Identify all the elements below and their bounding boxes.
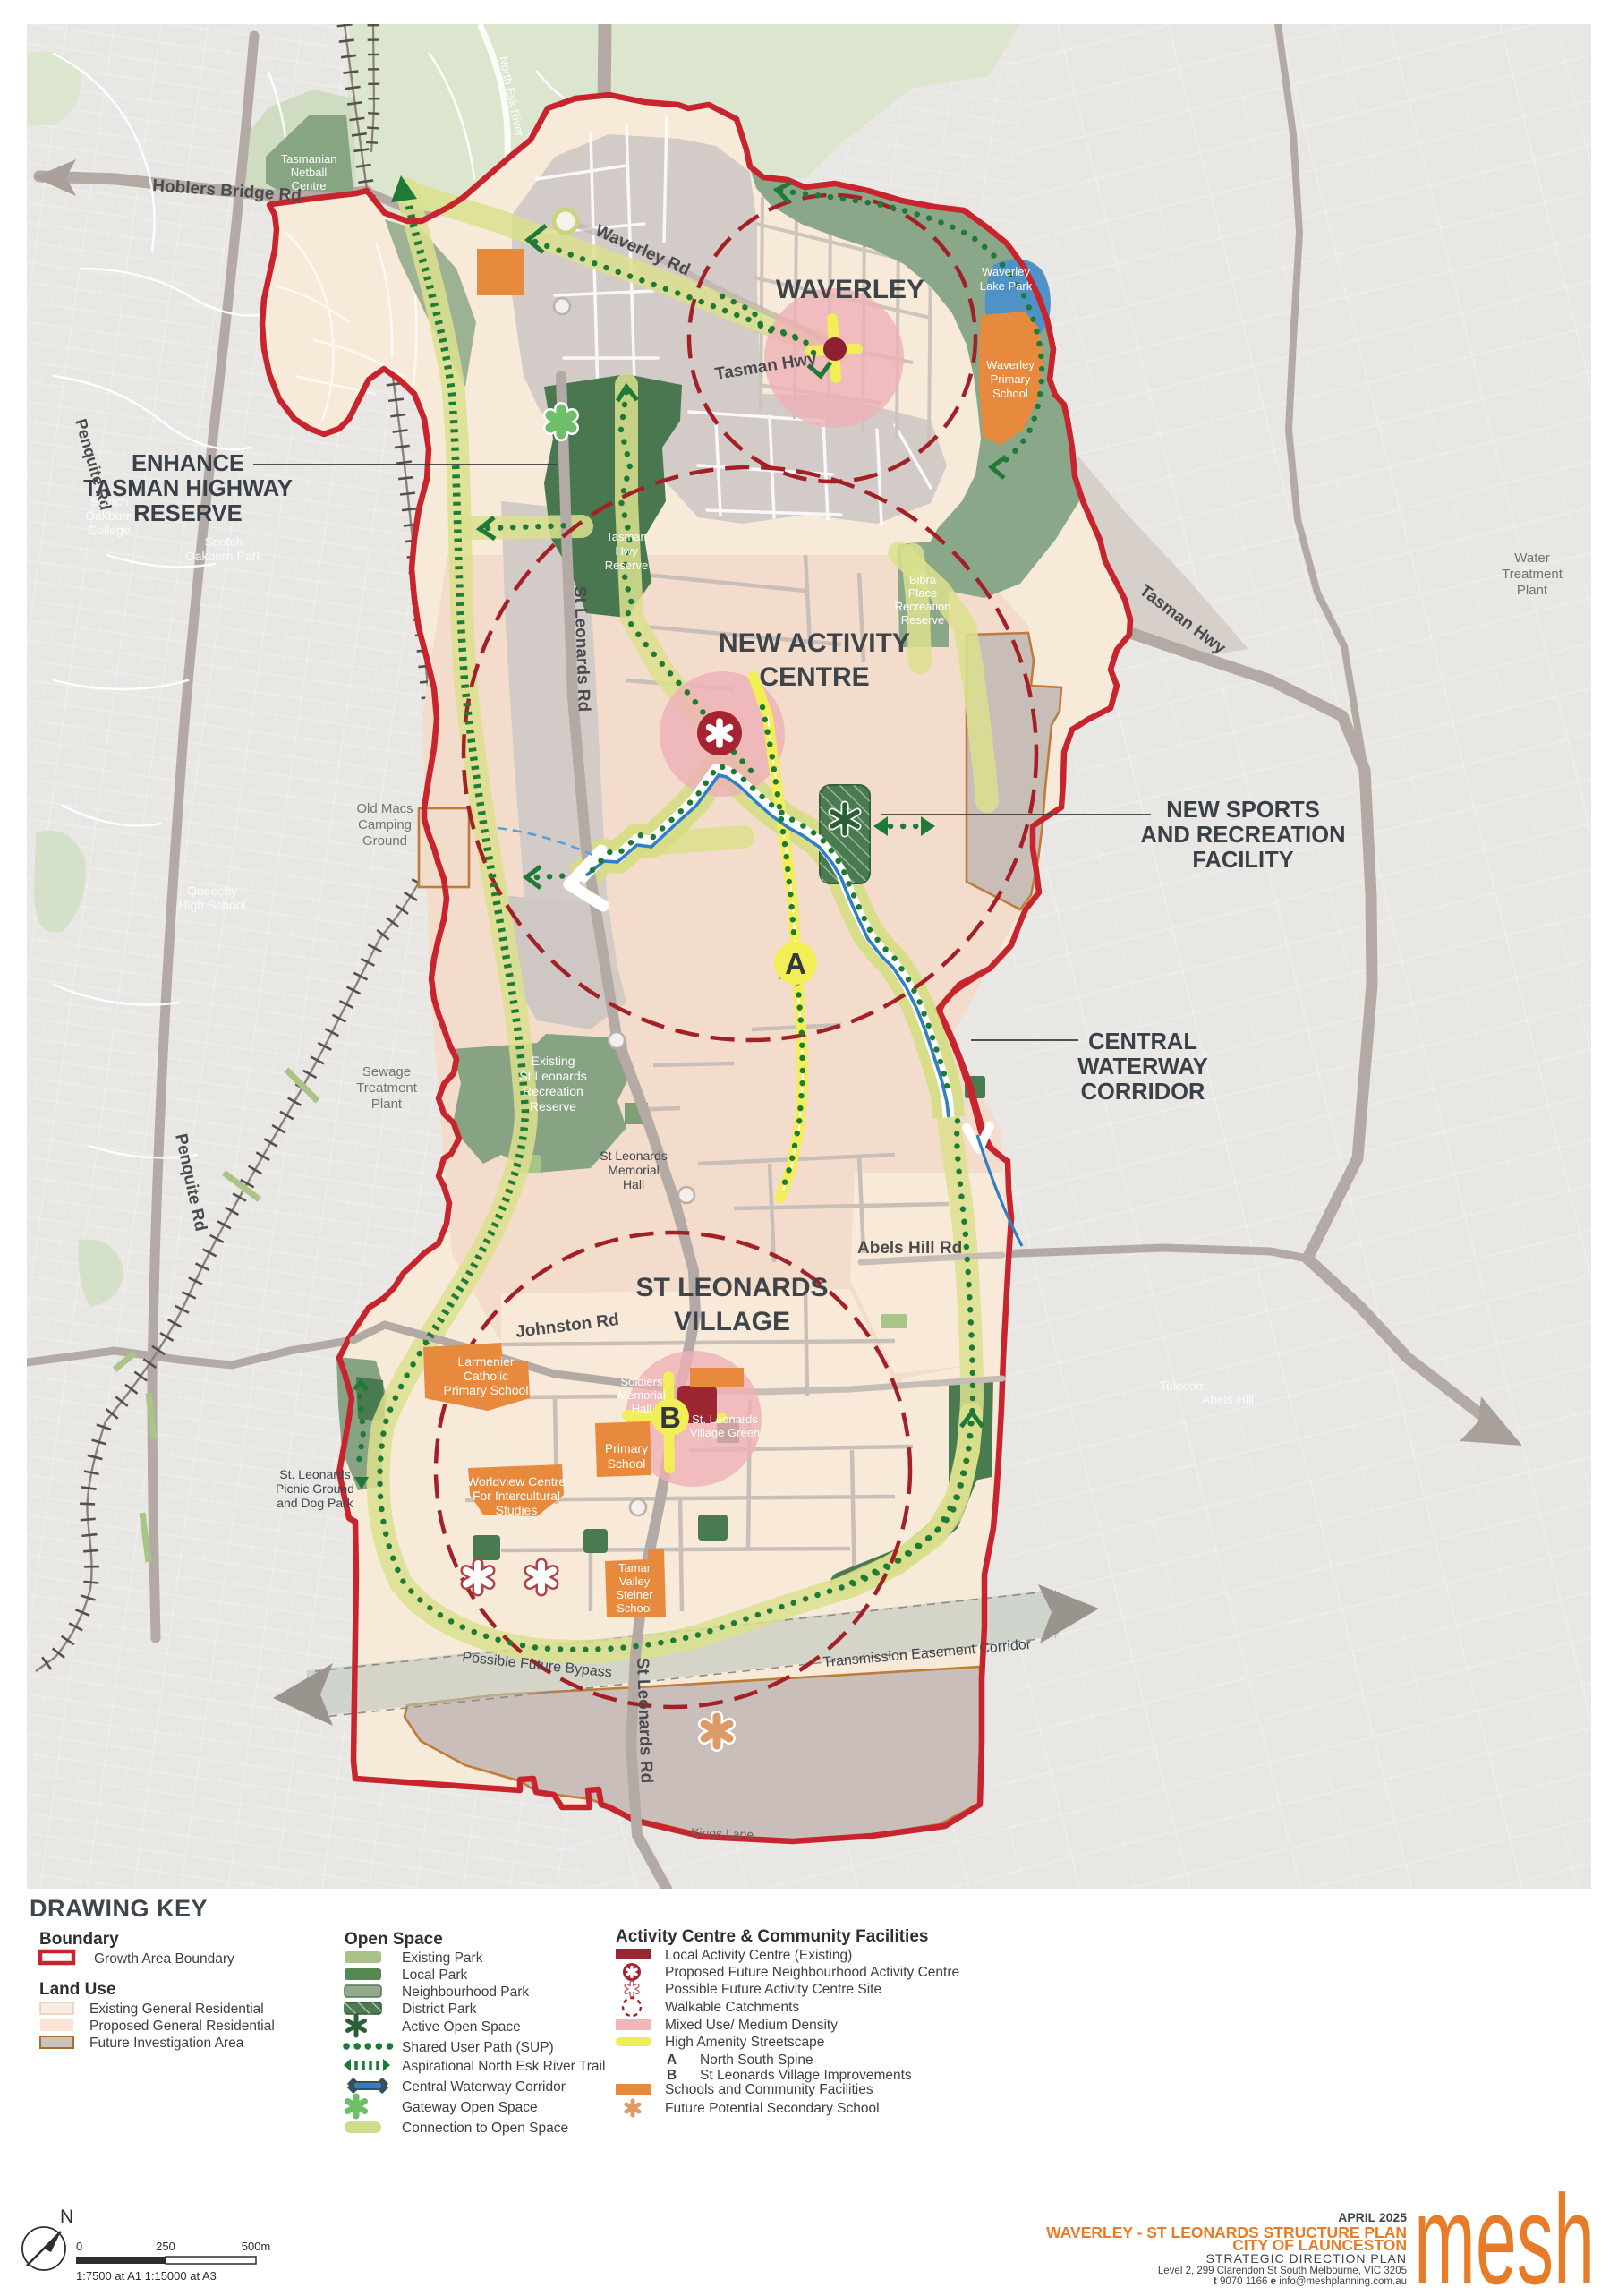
svg-text:Existing General Residential: Existing General Residential (89, 2002, 264, 2017)
svg-text:AND RECREATION: AND RECREATION (1140, 823, 1345, 848)
svg-text:Camping: Camping (358, 817, 412, 832)
svg-text:250: 250 (156, 2240, 175, 2253)
svg-text:Old Macs: Old Macs (356, 801, 413, 816)
svg-text:Proposed Future Neighbourhood: Proposed Future Neighbourhood Activity C… (665, 1965, 959, 1980)
svg-text:CENTRE: CENTRE (759, 662, 869, 692)
svg-text:Tasman: Tasman (606, 530, 647, 543)
svg-text:Neighbourhood Park: Neighbourhood Park (402, 1984, 529, 2000)
svg-text:Queechy: Queechy (187, 883, 237, 898)
svg-text:Treatment: Treatment (356, 1080, 418, 1096)
svg-text:DRAWING KEY: DRAWING KEY (30, 1895, 208, 1922)
svg-text:Catholic: Catholic (464, 1369, 509, 1383)
svg-text:Place: Place (908, 586, 938, 600)
svg-text:Central Waterway Corridor: Central Waterway Corridor (402, 2079, 566, 2095)
svg-text:Ground: Ground (362, 833, 407, 849)
svg-text:B: B (660, 1401, 681, 1434)
svg-text:Local Park: Local Park (402, 1967, 467, 1983)
svg-text:Scotch: Scotch (205, 534, 243, 549)
svg-text:Plant: Plant (371, 1097, 403, 1112)
svg-text:Connection to Open Space: Connection to Open Space (402, 2121, 568, 2136)
svg-text:VILLAGE: VILLAGE (674, 1307, 790, 1336)
svg-text:Hwy: Hwy (615, 544, 638, 558)
svg-text:WATERWAY: WATERWAY (1077, 1054, 1207, 1080)
svg-text:Waverley: Waverley (982, 265, 1030, 278)
svg-text:St Leonards Village Improvemen: St Leonards Village Improvements (700, 2068, 912, 2083)
svg-text:District Park: District Park (402, 2002, 477, 2017)
svg-text:Active Open Space: Active Open Space (402, 2019, 521, 2035)
svg-text:Future Investigation Area: Future Investigation Area (89, 2036, 244, 2051)
svg-text:NEW ACTIVITY: NEW ACTIVITY (719, 628, 910, 658)
svg-text:St. Leonards: St. Leonards (279, 1467, 350, 1481)
svg-text:Hall: Hall (623, 1177, 644, 1191)
svg-text:500m: 500m (242, 2240, 271, 2253)
svg-text:ENHANCE: ENHANCE (132, 451, 244, 476)
svg-text:St Leonards: St Leonards (519, 1069, 587, 1083)
svg-text:Steiner: Steiner (616, 1588, 653, 1601)
svg-text:t 9070 1166 e info@meshplanni: t 9070 1166 e info@meshplanning.com.au (1213, 2276, 1407, 2287)
svg-text:Tasmanian: Tasmanian (281, 152, 337, 166)
svg-text:Future Potential Secondary Sch: Future Potential Secondary School (665, 2101, 880, 2116)
svg-text:RESERVE: RESERVE (133, 501, 242, 526)
svg-text:Activity Centre & Community Fa: Activity Centre & Community Facilities (616, 1927, 928, 1946)
svg-text:Memorial: Memorial (617, 1388, 666, 1402)
svg-text:Centre: Centre (291, 179, 326, 192)
svg-text:Plant: Plant (1517, 583, 1548, 598)
svg-text:Lake Park: Lake Park (980, 279, 1033, 293)
svg-text:Treatment: Treatment (1502, 567, 1563, 582)
svg-text:Recreation: Recreation (523, 1084, 583, 1098)
svg-text:Kings Lane: Kings Lane (691, 1825, 754, 1841)
svg-text:Primary School: Primary School (444, 1383, 529, 1397)
svg-text:Schools and Community Faciliti: Schools and Community Facilities (665, 2082, 873, 2097)
svg-text:Larmenier: Larmenier (457, 1354, 514, 1369)
svg-text:Shared User Path (SUP): Shared User Path (SUP) (402, 2040, 554, 2055)
svg-text:High School: High School (178, 898, 246, 912)
svg-text:Picnic Ground: Picnic Ground (276, 1481, 354, 1496)
svg-text:Oakburn Park: Oakburn Park (185, 549, 263, 563)
svg-text:Boundary: Boundary (39, 1930, 119, 1949)
svg-text:CORRIDOR: CORRIDOR (1081, 1080, 1205, 1105)
svg-text:mesh: mesh (1414, 2169, 1595, 2292)
svg-text:WAVERLEY: WAVERLEY (776, 275, 924, 304)
svg-text:St Leonards: St Leonards (600, 1148, 668, 1163)
svg-text:A: A (785, 947, 806, 980)
svg-text:For Intercultural: For Intercultural (473, 1489, 560, 1503)
svg-text:Growth Area Boundary: Growth Area Boundary (94, 1951, 234, 1967)
svg-text:Recreation: Recreation (895, 600, 951, 613)
svg-text:B: B (667, 2068, 677, 2083)
svg-text:School: School (617, 1601, 652, 1615)
svg-text:Existing Park: Existing Park (402, 1950, 483, 1966)
svg-text:Water: Water (1514, 551, 1549, 566)
svg-text:Abels Hill Rd: Abels Hill Rd (857, 1239, 962, 1258)
svg-text:STRATEGIC DIRECTION PLAN: STRATEGIC DIRECTION PLAN (1206, 2251, 1407, 2266)
svg-text:Tamar: Tamar (618, 1561, 651, 1575)
svg-text:ST LEONARDS: ST LEONARDS (635, 1273, 828, 1302)
svg-text:Oakburn: Oakburn (85, 508, 133, 523)
svg-text:A: A (667, 2053, 677, 2068)
svg-text:Bibra: Bibra (909, 573, 937, 586)
svg-text:Waverley: Waverley (986, 358, 1035, 371)
svg-text:Sewage: Sewage (362, 1064, 411, 1080)
svg-text:Studies: Studies (496, 1503, 538, 1517)
svg-text:Possible Future Activity Centr: Possible Future Activity Centre Site (665, 1982, 881, 1997)
svg-text:Mixed Use/ Medium Density: Mixed Use/ Medium Density (665, 2018, 838, 2033)
svg-text:High Amenity Streetscape: High Amenity Streetscape (665, 2035, 824, 2050)
svg-text:Netball: Netball (291, 166, 328, 179)
svg-text:Telecom: Telecom (1160, 1378, 1206, 1393)
svg-text:Worldview Centre: Worldview Centre (467, 1474, 566, 1489)
svg-text:FACILITY: FACILITY (1192, 848, 1293, 873)
svg-text:Level 2, 299 Clarendon St Sout: Level 2, 299 Clarendon St South Melbourn… (1158, 2266, 1407, 2276)
svg-text:Soldiers: Soldiers (621, 1375, 663, 1388)
svg-text:Memorial: Memorial (608, 1163, 660, 1177)
svg-text:Hall: Hall (632, 1402, 652, 1415)
svg-text:Local Activity Centre (Existin: Local Activity Centre (Existing) (665, 1948, 852, 1963)
svg-text:1:7500 at A1 1:15000 at A3: 1:7500 at A1 1:15000 at A3 (76, 2269, 217, 2283)
svg-text:Reserve: Reserve (901, 613, 944, 627)
svg-text:College: College (88, 523, 131, 537)
svg-text:School: School (608, 1456, 646, 1471)
svg-text:N: N (60, 2206, 73, 2227)
svg-text:CENTRAL: CENTRAL (1088, 1029, 1197, 1054)
svg-text:Reserve: Reserve (530, 1099, 576, 1114)
svg-text:School: School (992, 387, 1028, 400)
svg-text:Proposed General Residential: Proposed General Residential (89, 2019, 275, 2034)
svg-text:Gateway Open Space: Gateway Open Space (402, 2100, 538, 2115)
svg-text:Reserve: Reserve (605, 559, 648, 572)
svg-text:Primary: Primary (991, 372, 1031, 386)
svg-text:Valley: Valley (619, 1575, 651, 1588)
svg-text:and Dog Park: and Dog Park (277, 1496, 354, 1510)
svg-text:Primary: Primary (605, 1441, 648, 1455)
svg-text:APRIL 2025: APRIL 2025 (1338, 2210, 1407, 2224)
svg-text:Open Space: Open Space (345, 1930, 443, 1949)
svg-text:0: 0 (76, 2240, 82, 2253)
svg-text:Land Use: Land Use (39, 1980, 116, 1999)
svg-text:Aspirational North Esk River T: Aspirational North Esk River Trail (402, 2059, 605, 2074)
svg-text:North South Spine: North South Spine (700, 2053, 813, 2068)
svg-text:NEW SPORTS: NEW SPORTS (1166, 798, 1319, 823)
svg-text:Abels Hill: Abels Hill (1202, 1392, 1254, 1406)
svg-text:Existing: Existing (531, 1054, 575, 1068)
svg-text:Village Green: Village Green (690, 1426, 761, 1439)
svg-text:Scotch: Scotch (90, 494, 129, 508)
svg-text:St. Leonards: St. Leonards (692, 1413, 758, 1426)
svg-text:Walkable Catchments: Walkable Catchments (665, 2000, 799, 2015)
